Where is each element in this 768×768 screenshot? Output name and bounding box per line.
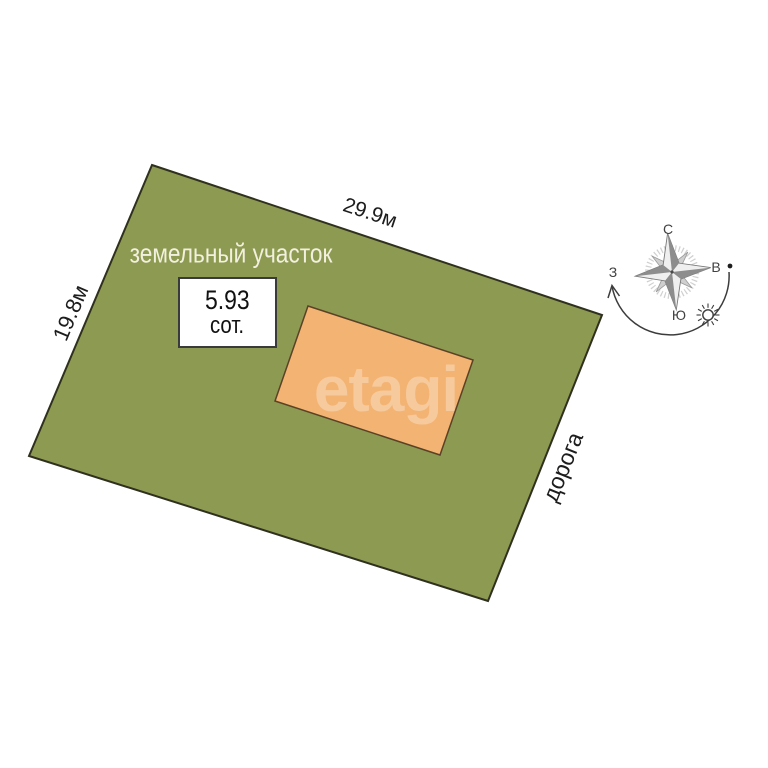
compass-south-label: Ю [672, 307, 686, 323]
compass-north-label: С [663, 221, 673, 237]
compass-rose: С В З Ю [608, 221, 732, 335]
watermark-text: etagi [314, 357, 458, 421]
east-marker-dot [728, 264, 733, 269]
compass-east-label: В [711, 259, 720, 275]
compass-west-label: З [609, 264, 617, 280]
sun-icon [697, 304, 720, 327]
area-box: 5.93 сот. [178, 277, 277, 348]
land-plot-plan: С В З Ю [0, 0, 768, 768]
plot-name-label: земельный участок [130, 241, 333, 268]
area-value: 5.93 [205, 287, 250, 314]
area-unit: сот. [210, 314, 244, 338]
